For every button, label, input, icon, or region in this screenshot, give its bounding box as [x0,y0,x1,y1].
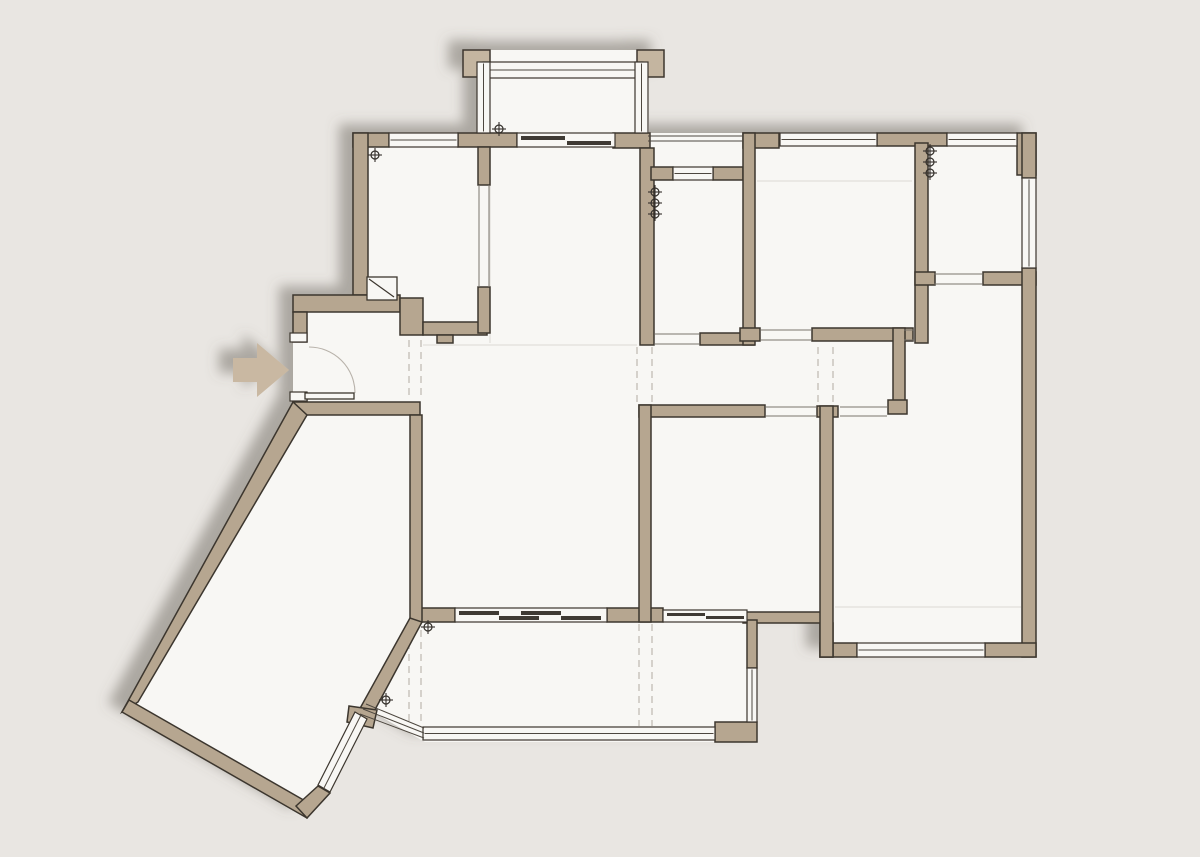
wall-segment [877,133,947,146]
wall-segment [607,608,663,622]
wall-segment [651,167,673,180]
entry-door-leaf [305,393,354,399]
wall-segment [353,133,368,295]
sliding-door-panel [521,611,561,615]
sliding-door-panel [499,616,539,620]
door-jamb-cap [290,333,307,342]
sliding-door-panel [667,613,705,616]
wall-segment [478,147,490,185]
floor-plan [0,0,1200,857]
wall-segment [915,272,935,285]
wall-segment [893,328,905,408]
wall-segment [747,620,757,668]
building-footprint [122,50,1036,818]
sliding-door-panel [567,141,611,145]
wall-segment [613,133,650,148]
sliding-door-panel [706,616,744,619]
sliding-door-panel [521,136,565,140]
floor-plan-page [0,0,1200,857]
wall-segment [478,287,490,333]
entry-arrow [233,343,289,397]
wall-segment [888,400,907,414]
wall-segment [639,405,651,622]
wall-segment [639,405,765,417]
wall-segment [1022,133,1036,178]
wall-segment [715,722,757,742]
wall-segment [820,406,833,657]
wall-segment [420,608,455,622]
wall-segment [293,402,420,415]
sliding-door-panel [459,611,499,615]
sliding-door-panel [561,616,601,620]
wall-segment [458,133,517,147]
wall-segment [437,335,453,343]
wall-segment [1022,268,1036,657]
wall-segment [985,643,1036,657]
wall-segment [740,328,760,341]
wall-segment [713,167,743,180]
building-shadow-group [122,50,1036,818]
wall-segment [400,298,423,335]
wall-segment [410,415,422,622]
wall-segment [743,133,755,345]
